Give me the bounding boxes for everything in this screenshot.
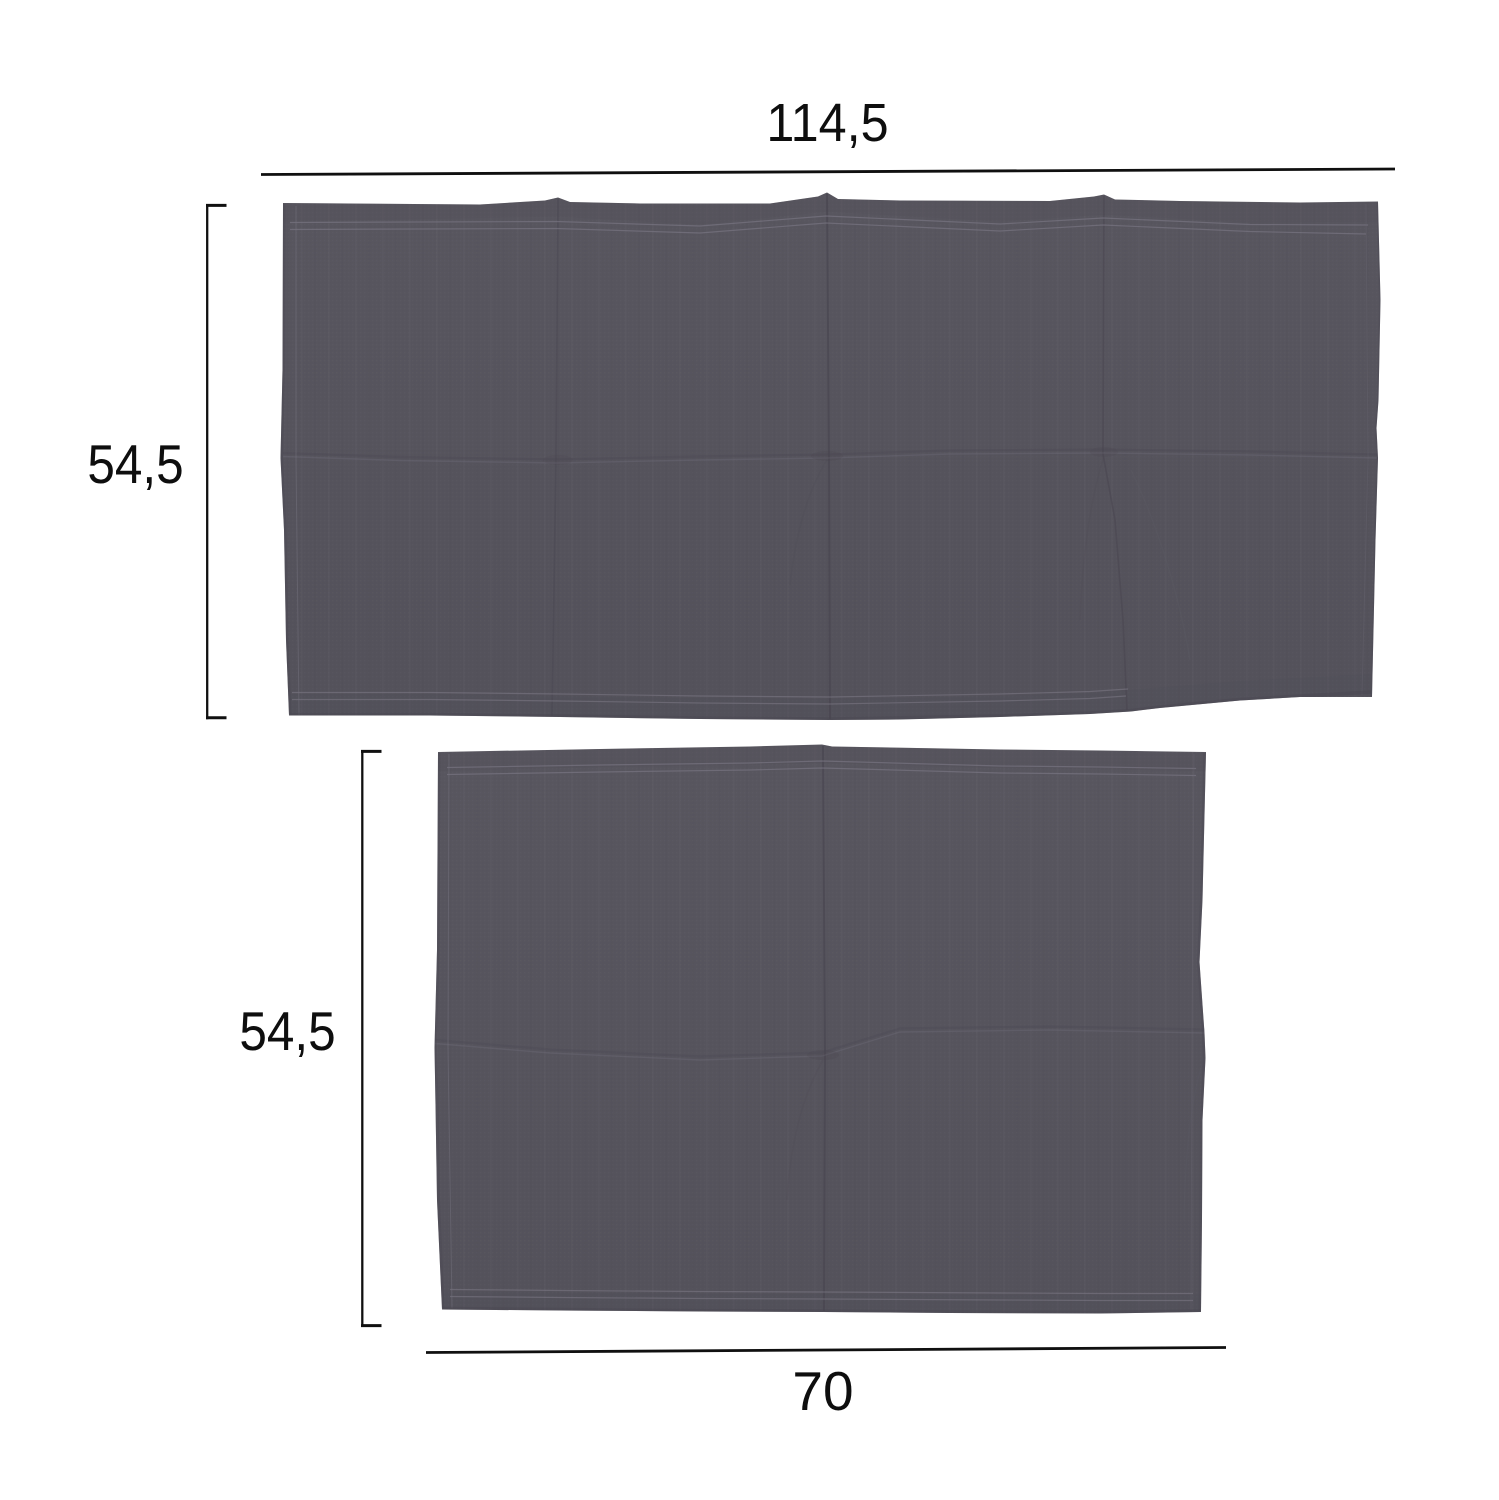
svg-text:54,5: 54,5 — [87, 435, 183, 496]
svg-text:54,5: 54,5 — [239, 1002, 335, 1063]
svg-text:114,5: 114,5 — [766, 94, 888, 154]
svg-text:70: 70 — [792, 1360, 853, 1422]
